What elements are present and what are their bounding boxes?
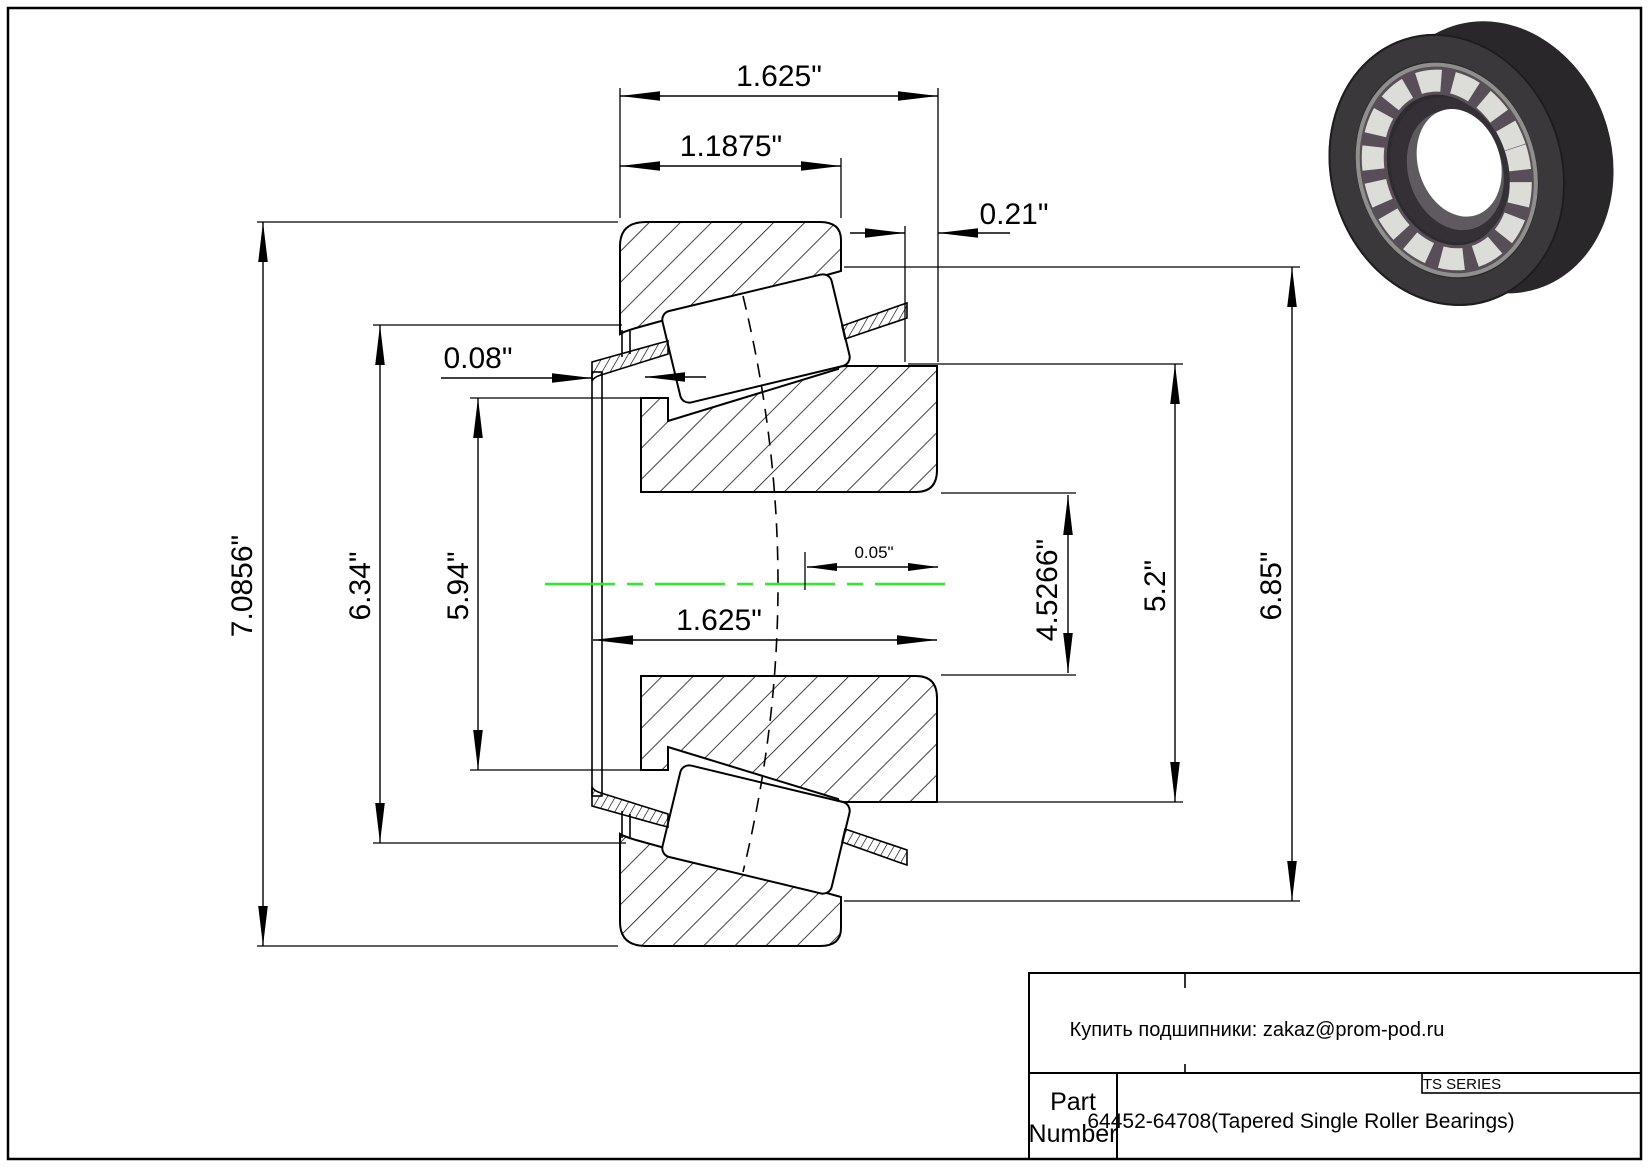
dim-label-cup-width: 1.1875" — [680, 130, 782, 163]
dim-label-dia-52: 5.2" — [1139, 560, 1172, 612]
dim-label-overall-width-mid: 1.625" — [676, 604, 762, 637]
dim-label-apex-offset: 0.05" — [854, 543, 893, 562]
dim-label-front-standout: 0.08" — [443, 342, 512, 375]
dim-label-bore-dia: 4.5266" — [1031, 539, 1064, 641]
dim-label-dia-634: 6.34" — [344, 551, 377, 620]
dim-label-od: 7.0856" — [226, 535, 259, 637]
dim-label-back-standout: 0.21" — [979, 198, 1048, 231]
part-number-text: 64452-64708(Tapered Single Roller Bearin… — [1087, 1110, 1514, 1133]
dim-label-dia-594: 5.94" — [442, 551, 475, 620]
series-label: TS SERIES — [1423, 1076, 1501, 1093]
dim-label-dia-685: 6.85" — [1255, 551, 1288, 620]
drawing-sheet: 1.625" 1.1875" 0.21" 0.08" 0.05" 1.625" — [0, 0, 1649, 1167]
contact-email-text: Купить подшипники: zakaz@prom-pod.ru — [1070, 1019, 1445, 1041]
dim-label-overall-width-top: 1.625" — [736, 60, 822, 93]
